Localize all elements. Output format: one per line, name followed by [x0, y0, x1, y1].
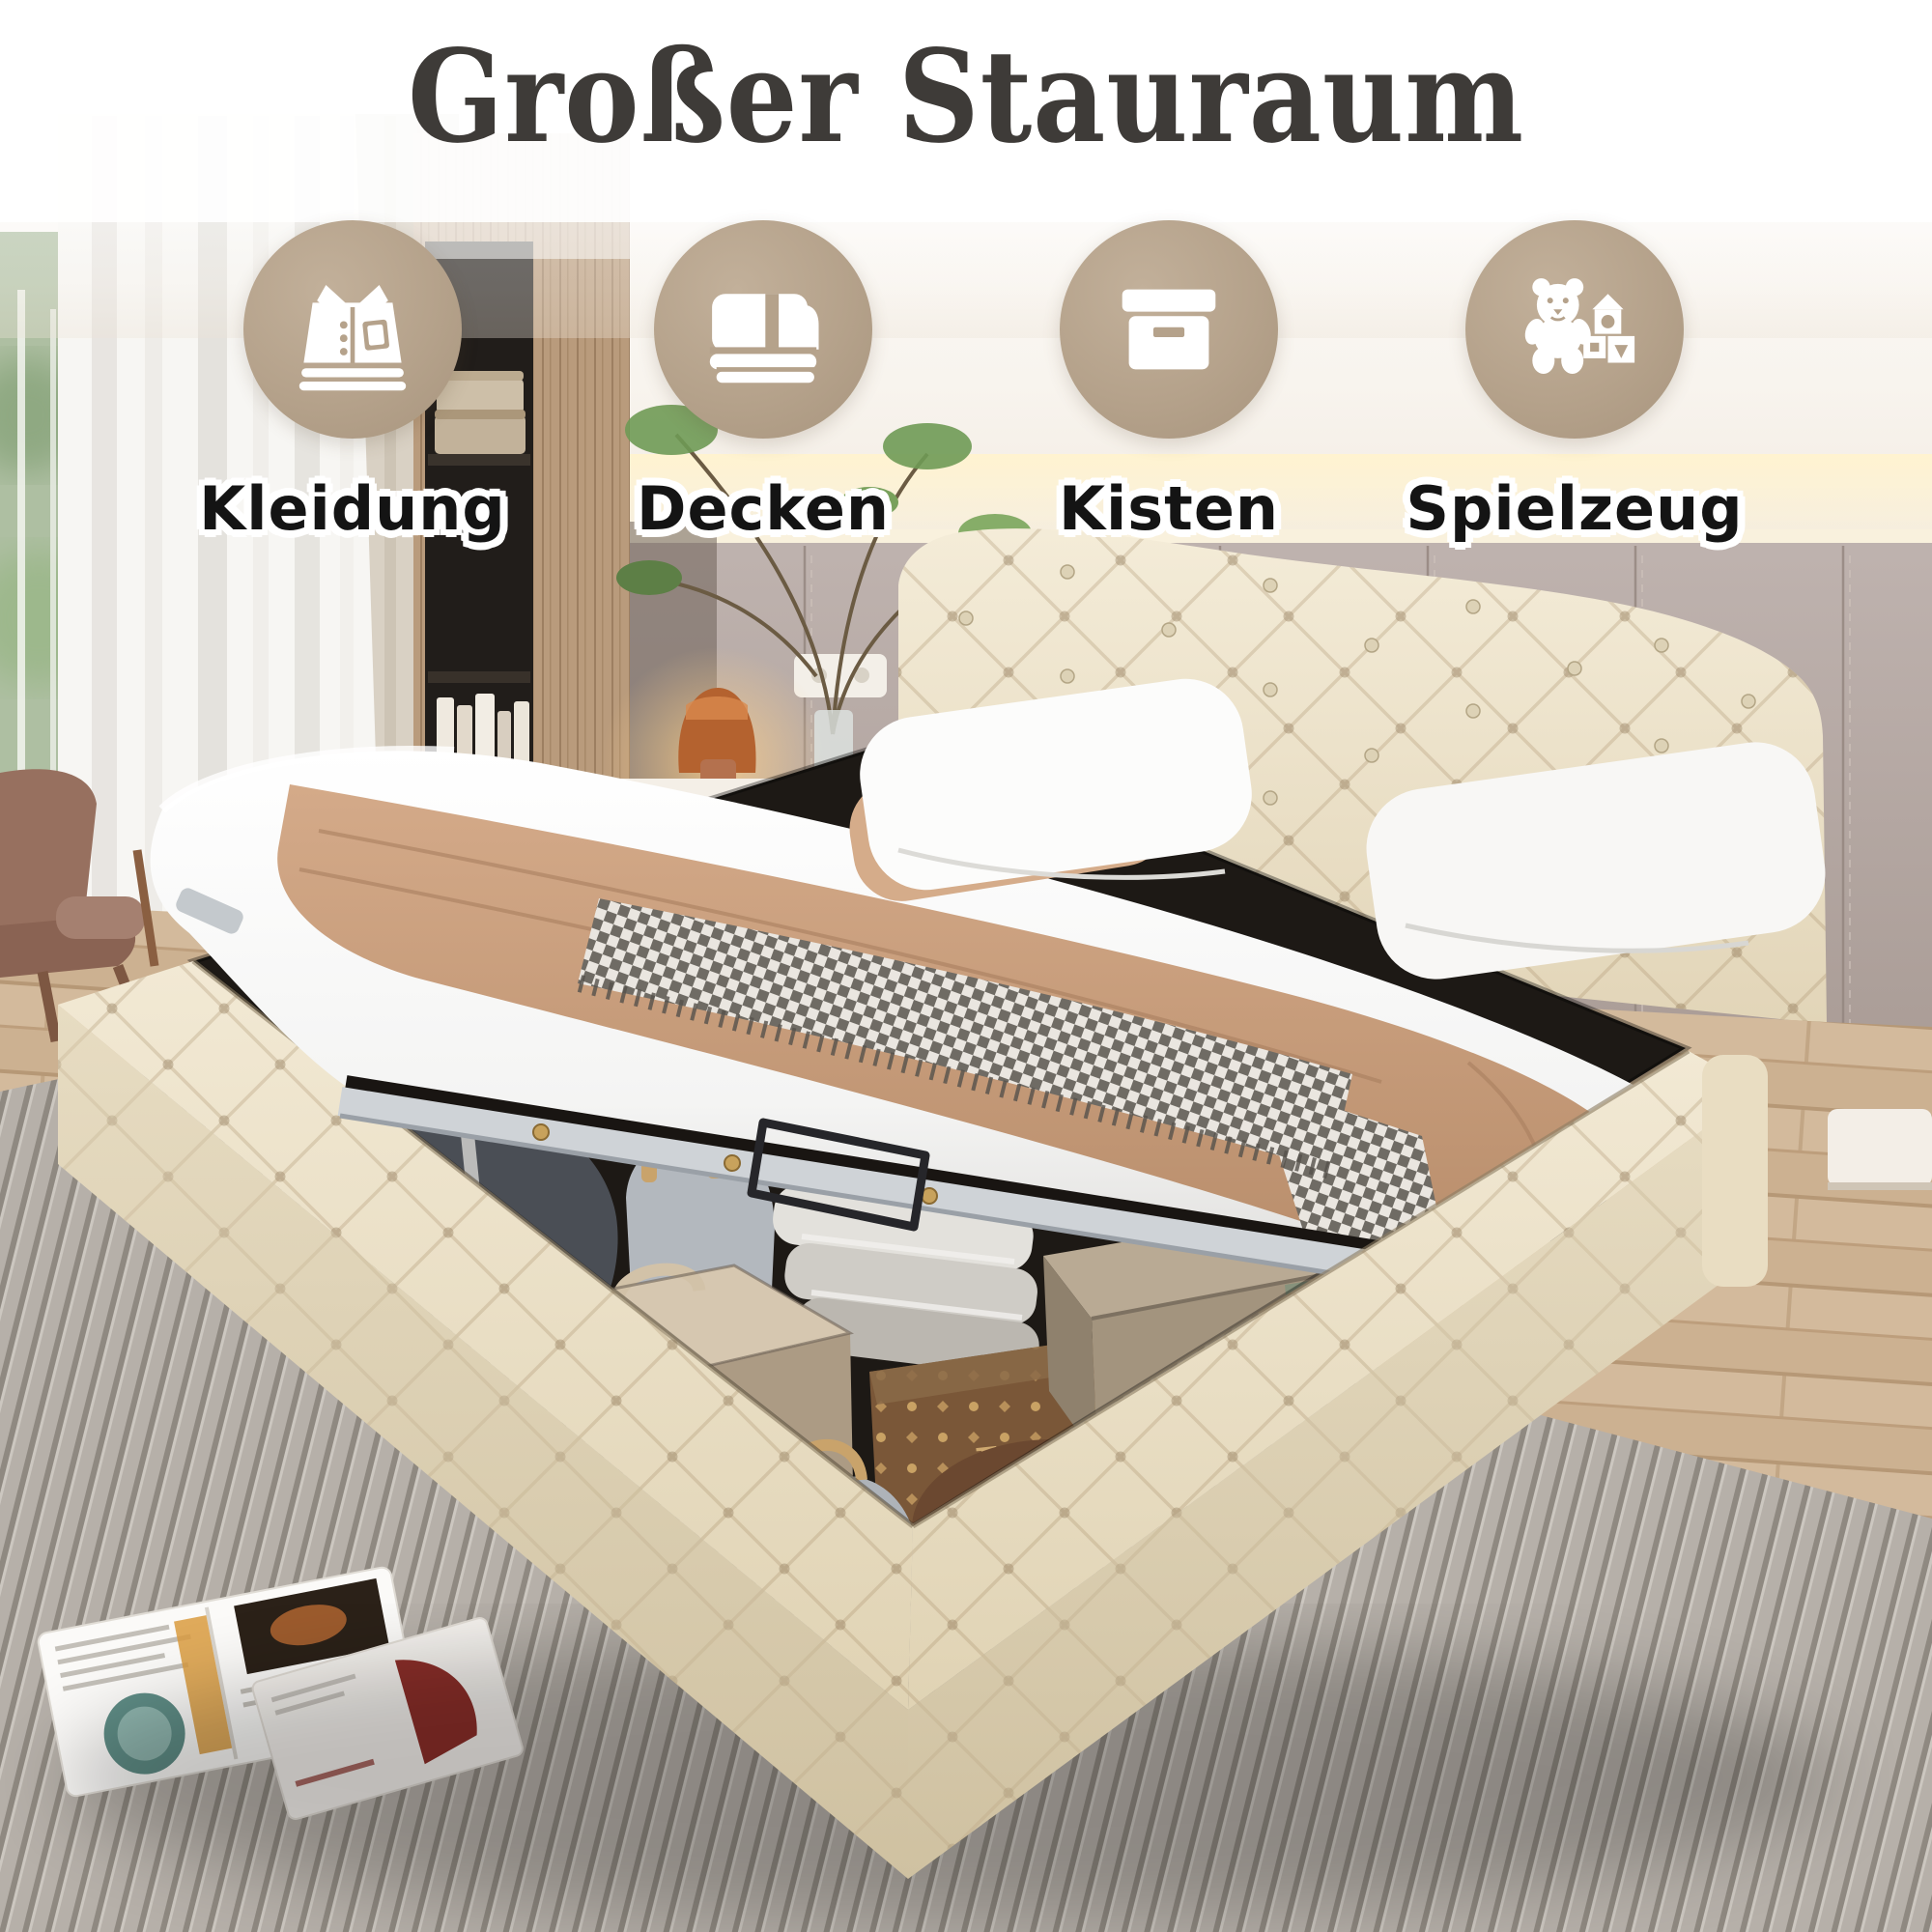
feature-label: Decken [589, 473, 937, 544]
badge-circle [1465, 220, 1684, 439]
badge-circle [654, 220, 872, 439]
clothing-icon [286, 263, 419, 396]
blanket-icon [696, 263, 830, 396]
teddy-bear-icon [1508, 263, 1641, 396]
feature-spielzeug: Spielzeug [1401, 220, 1748, 544]
feature-kleidung: Kleidung [179, 220, 526, 544]
side-frame [1702, 1055, 1768, 1287]
feature-label: Spielzeug [1401, 473, 1748, 544]
page-title: Großer Stauraum [116, 27, 1816, 167]
feature-decken: Decken [589, 220, 937, 544]
feature-label: Kisten [995, 473, 1343, 544]
product-marketing-image: LV VUITTON [0, 0, 1932, 1932]
storage-box-icon [1102, 263, 1236, 396]
badge-circle [1060, 220, 1278, 439]
floating-shelf [1828, 1109, 1932, 1190]
feature-kisten: Kisten [995, 220, 1343, 544]
badge-circle [243, 220, 462, 439]
feature-label: Kleidung [179, 473, 526, 544]
